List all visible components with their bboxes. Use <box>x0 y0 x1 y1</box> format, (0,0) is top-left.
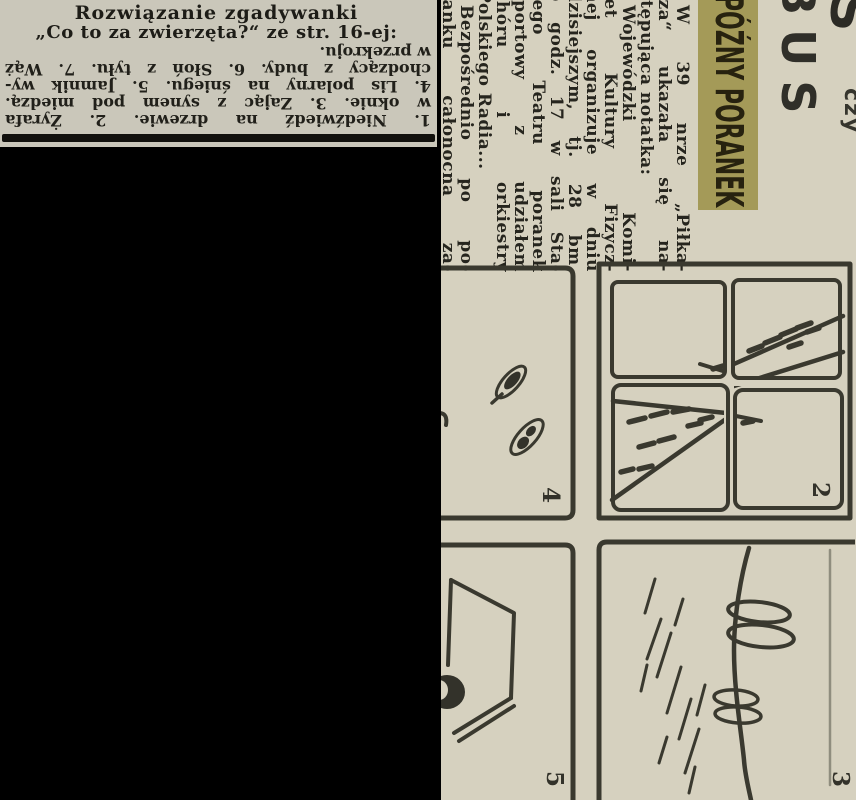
headline-text: PÓŹNY PORANEK <box>700 0 758 207</box>
article-line: Wojewódzki Komi- <box>619 0 637 272</box>
panel-number-5: 5 <box>541 766 567 792</box>
magazine-page-rotated: BUS S czy PÓŹNY PORANEK W 39 nrze „Piłka… <box>441 0 856 800</box>
article-line: o godz. 17 w sali Sta- <box>547 0 565 272</box>
doghouse-drawing <box>441 540 579 800</box>
puzzle-panel-3 <box>593 535 855 800</box>
article-lines: W 39 nrze „Piłka- rza“ ukazała się na- s… <box>441 0 693 272</box>
answer-line: 4. Lis polarny na śniegu. 5. Jamnik wy- <box>5 78 431 95</box>
clipping-title-line1: Rozwiązanie zgadywanki <box>0 3 433 23</box>
panel-number-3: 3 <box>827 766 853 792</box>
clipping-bottom-rule <box>2 134 435 142</box>
answer-line: chodzący z budy. 6. Słoń z tyłu. 7. Wąż <box>5 61 431 78</box>
article-line: stępująca notatka: <box>637 0 655 272</box>
article-line: dzisiejszym, tj. 28 bm. <box>565 0 583 272</box>
panel-number-4: 4 <box>537 482 563 508</box>
masthead-edge-fragment: S <box>834 0 856 64</box>
edge-fragment-small-text: czy <box>838 88 856 158</box>
edge-fragment-large-text: S <box>834 0 856 64</box>
headline-highlight-bar: PÓŹNY PORANEK <box>698 0 758 210</box>
panel-number-2: 2 <box>807 477 833 503</box>
puzzle-panel-5 <box>441 540 579 800</box>
article-line: ranku całonocna za- <box>441 0 457 272</box>
masthead-edge-fragment-small: czy <box>838 88 856 158</box>
article-line: rza“ ukazała się na- <box>655 0 673 272</box>
answers-upside-down-text: 1. Niedźwiedź na drzewie. 2. Żyrafa w ok… <box>5 44 431 129</box>
article-line: chóru i orkiestry <box>493 0 511 272</box>
answer-line: 1. Niedźwiedź na drzewie. 2. Żyrafa <box>5 112 431 129</box>
headline-bar-inner: PÓŹNY PORANEK <box>698 0 758 210</box>
article-text-block: W 39 nrze „Piłka- rza“ ukazała się na- s… <box>441 0 691 272</box>
article-line: sportowy z udziałem <box>511 0 529 272</box>
article-line: W 39 nrze „Piłka- <box>673 0 691 272</box>
article-line: tet Kultury Fizycz- <box>601 0 619 272</box>
article-line: nej organizuje w dniu <box>583 0 601 272</box>
article-line: Bezpośrednio po po- <box>457 0 475 272</box>
article-line: Polskiego Radia... <box>475 0 493 272</box>
clipping-title-block: Rozwiązanie zgadywanki „Co to za zwierzę… <box>0 3 433 43</box>
newspaper-clipping-answers: Rozwiązanie zgadywanki „Co to za zwierzę… <box>0 0 437 147</box>
answer-line: w przekroju. <box>5 44 431 61</box>
hare-ears-drawing <box>593 535 855 800</box>
article-line: rego Teatru poranek <box>529 0 547 272</box>
answer-line: w oknie. 3. Zając z synem pod miedzą. <box>5 95 431 112</box>
clipping-title-line2: „Co to za zwierzęta?“ ze str. 16-ej: <box>0 23 433 43</box>
